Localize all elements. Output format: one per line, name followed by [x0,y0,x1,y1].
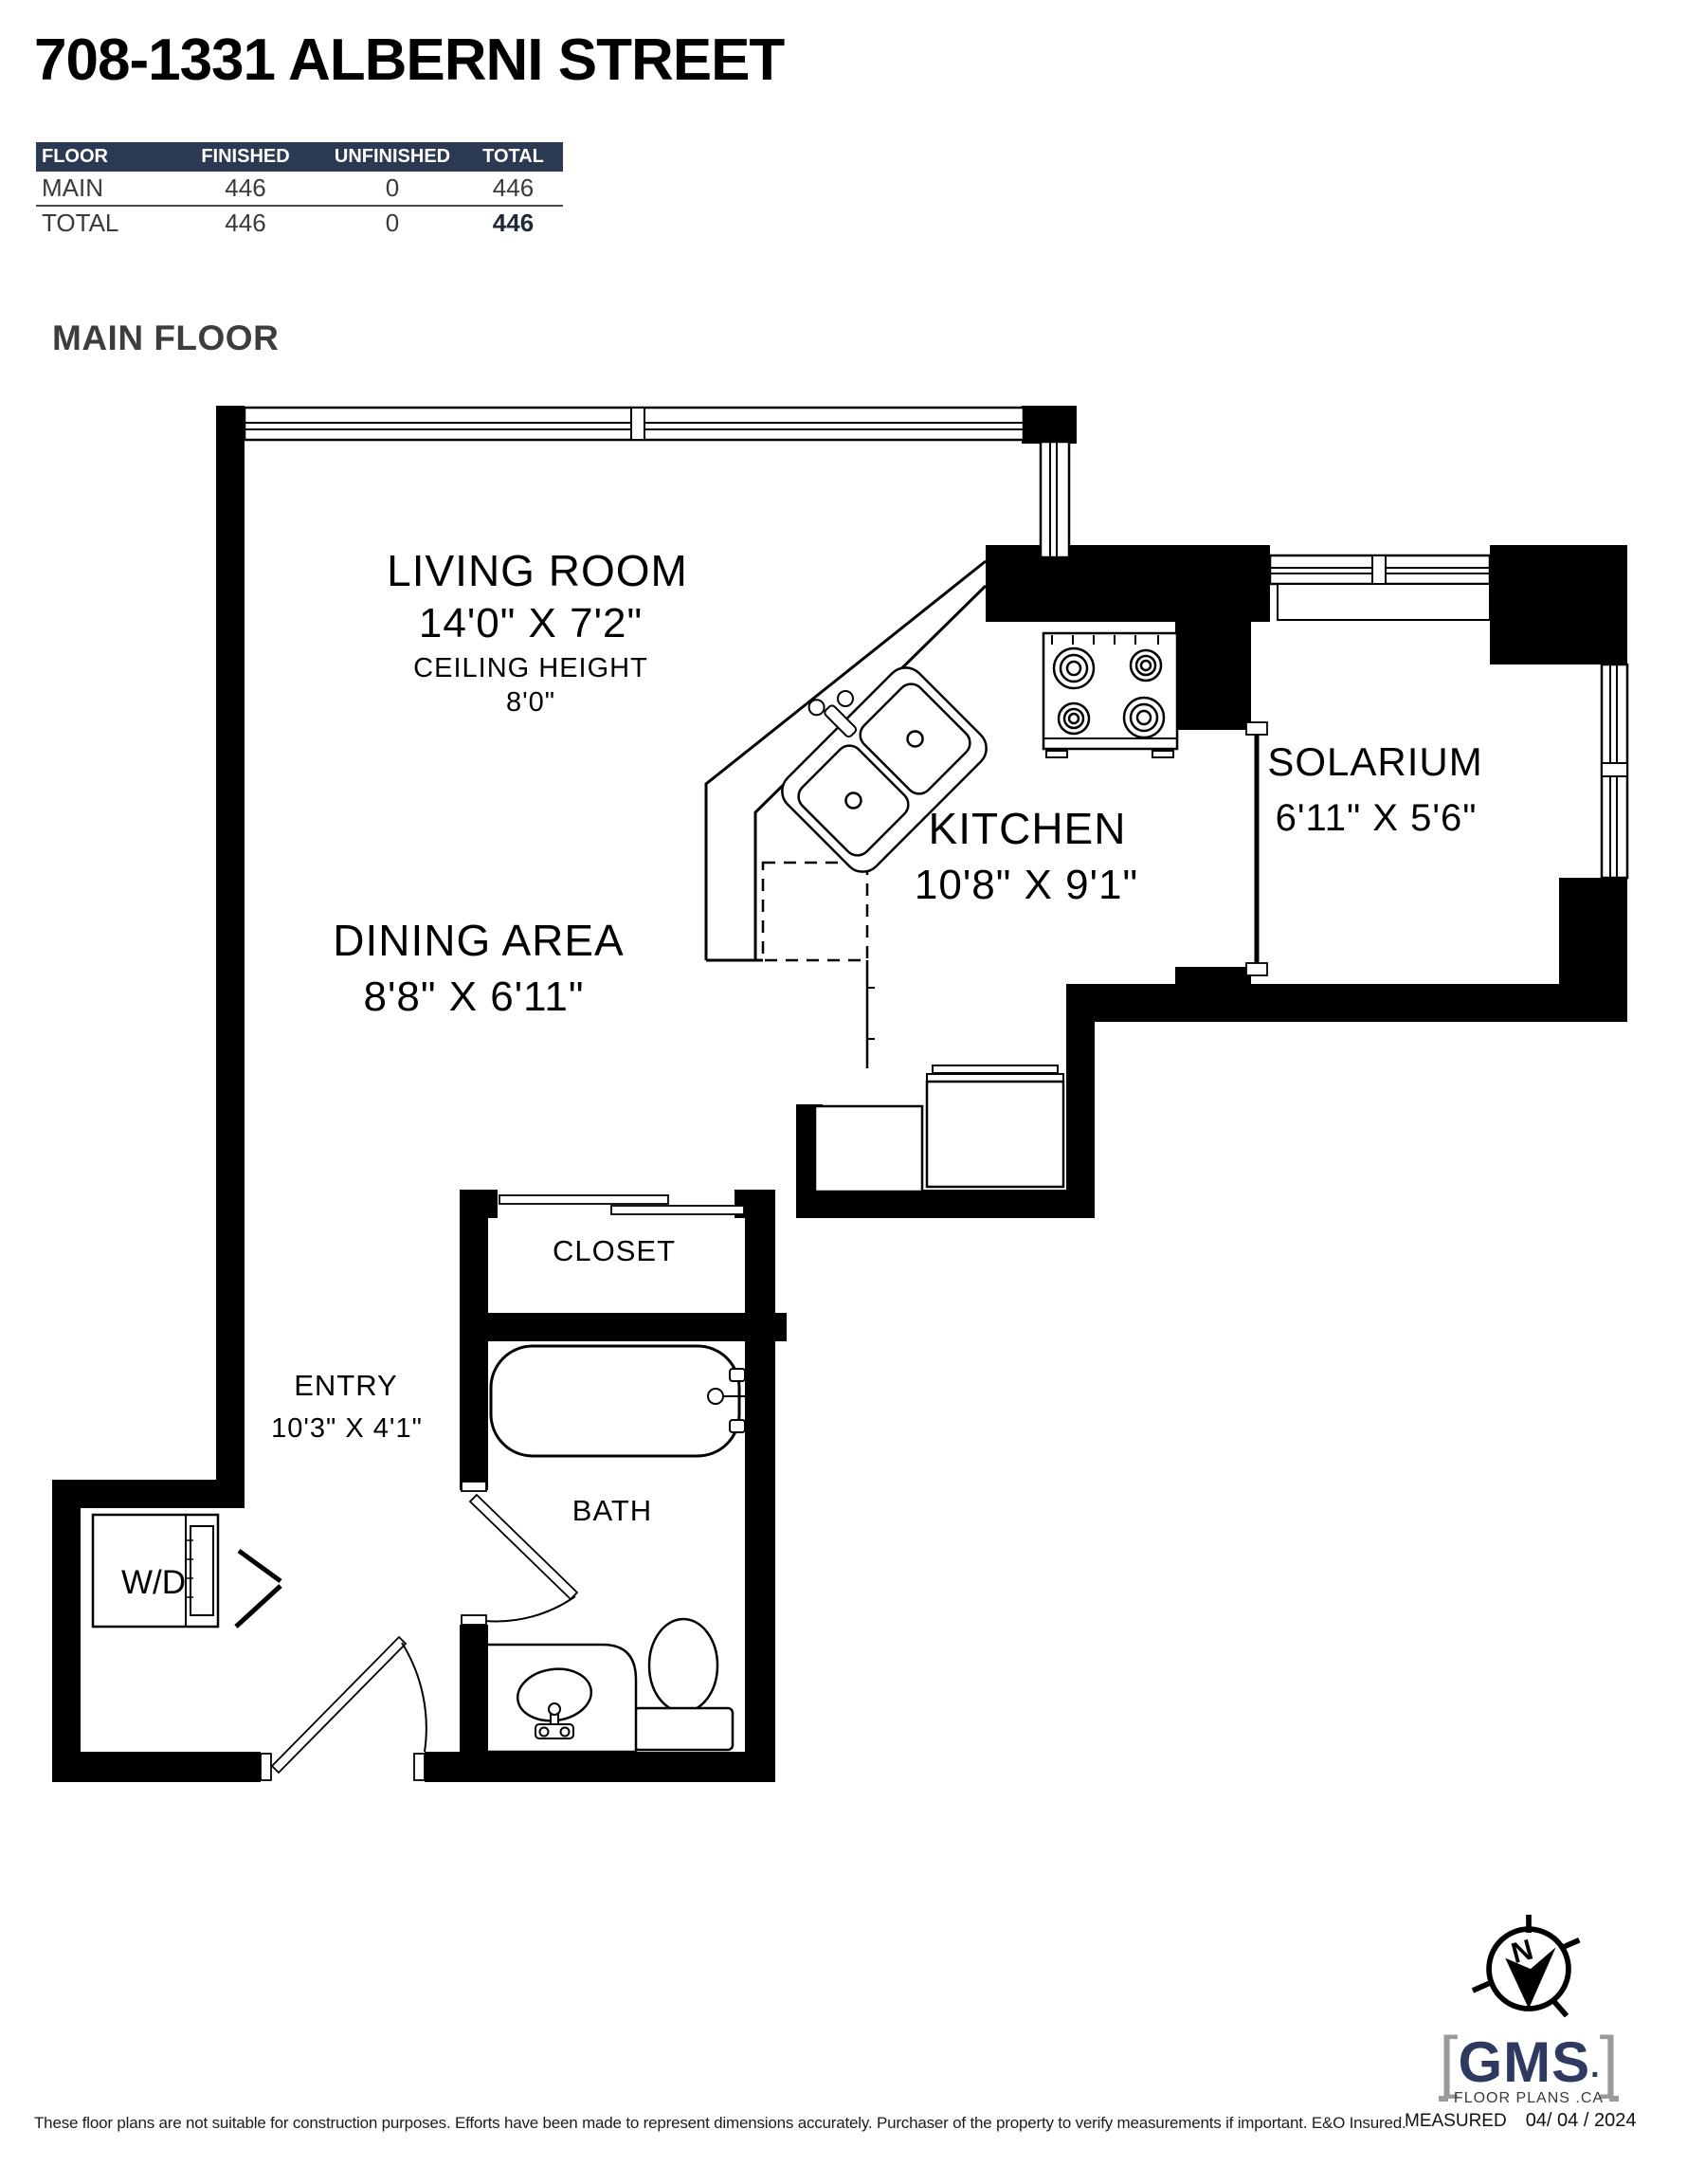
wall-closet-bath-right [745,1190,775,1782]
solarium-dimensions: 6'11" X 5'6" [1276,797,1478,839]
row-main-total: 446 [463,173,563,203]
toilet [634,1619,733,1750]
row-main-floor: MAIN [36,173,170,203]
tagline-bar-left [1439,2096,1448,2102]
disclaimer-text: These floor plans are not suitable for c… [34,2114,1406,2133]
kitchen-dimensions: 10'8" X 9'1" [915,862,1138,908]
gms-logo: N [GMS.] FLOOR PLANS .CA [1439,1913,1619,2107]
row-total-unfinished: 0 [321,209,463,238]
solarium-label: SOLARIUM [1267,739,1482,784]
solarium-sliding-door [1246,722,1267,975]
area-table-header: FLOOR FINISHED UNFINISHED TOTAL [36,142,563,172]
window-solarium-top [1270,555,1490,620]
gms-wordmark: [GMS.] [1439,2035,1619,2090]
wall-alcove-left [52,1480,81,1782]
wall-kitchen-bottom [796,1190,1095,1218]
col-unfinished: UNFINISHED [321,146,463,168]
gms-text: GMS [1458,2040,1590,2085]
floor-name-heading: MAIN FLOOR [52,318,279,358]
kitchen-label: KITCHEN [929,804,1127,853]
window-living-right [1041,442,1069,557]
dining-area-label: DINING AREA [333,916,625,965]
col-total: TOTAL [463,146,563,168]
bath-door [462,1482,577,1625]
living-room-label: LIVING ROOM [387,546,688,595]
wall-closet-bath-divider [460,1313,787,1341]
closet-label: CLOSET [553,1234,676,1267]
row-total-total: 446 [463,209,563,238]
vanity-sink [488,1645,636,1752]
wd-label: W/D [121,1564,186,1601]
row-total-floor: TOTAL [36,209,170,238]
kitchen-cabinet [815,1106,922,1192]
wall-solarium-left-upper [1175,545,1251,730]
wall-solarium-left-lower [1175,967,1251,1022]
window-solarium-right [1602,664,1627,878]
room-labels: LIVING ROOM 14'0" X 7'2" CEILING HEIGHT … [121,546,1483,1601]
wall-solarium-bottom [1066,984,1627,1022]
row-total-finished: 446 [170,209,321,238]
wall-closet-block-left [460,1190,498,1218]
measured-date: 04/ 04 / 2024 [1526,2110,1637,2132]
closet-sliding-door [498,1190,744,1218]
wall-alcove-top [52,1480,245,1508]
stove [1043,633,1177,757]
window-living-top [245,408,1024,440]
wall-solarium-corner-tr [1490,545,1627,664]
table-row: TOTAL 446 0 446 [36,207,563,240]
wd-bifold-door [236,1551,281,1627]
entry-dimensions: 10'3" X 4'1" [271,1413,423,1444]
area-table: FLOOR FINISHED UNFINISHED TOTAL MAIN 446… [36,142,563,240]
entry-door [261,1637,426,1780]
col-finished: FINISHED [170,146,321,168]
dishwasher [763,863,867,960]
dining-area-dimensions: 8'8" X 6'11" [364,974,585,1020]
entry-label: ENTRY [294,1369,398,1402]
gms-tagline-row: FLOOR PLANS .CA [1439,2090,1619,2107]
bracket-right: ] [1600,2035,1619,2090]
bath-label: BATH [572,1494,652,1527]
page-title: 708-1331 ALBERNI STREET [34,27,784,94]
wall-bath-left-lower [460,1625,488,1757]
fridge [927,1065,1063,1187]
bracket-left: [ [1439,2035,1458,2090]
wall-living-corner-tr [1022,406,1077,444]
gms-tagline: FLOOR PLANS .CA [1454,2090,1604,2107]
row-main-unfinished: 0 [321,173,463,203]
ceiling-height-value: 8'0" [506,687,555,718]
tagline-bar-right [1609,2096,1619,2102]
table-row: MAIN 446 0 446 [36,172,563,207]
row-main-finished: 446 [170,173,321,203]
wall-left [216,406,245,1483]
ceiling-height-label: CEILING HEIGHT [413,653,648,683]
col-floor: FLOOR [36,146,170,168]
measured-block: MEASURED 04/ 04 / 2024 [1405,2110,1636,2132]
compass-north-icon: N [1472,1913,1586,2029]
gms-dot: . [1590,2045,1599,2090]
wall-alcove-bottom [52,1752,261,1782]
measured-label: MEASURED [1405,2111,1507,2132]
bathtub [491,1346,745,1456]
wall-solarium-corner-br [1559,878,1627,1022]
living-room-dimensions: 14'0" X 7'2" [419,600,643,646]
